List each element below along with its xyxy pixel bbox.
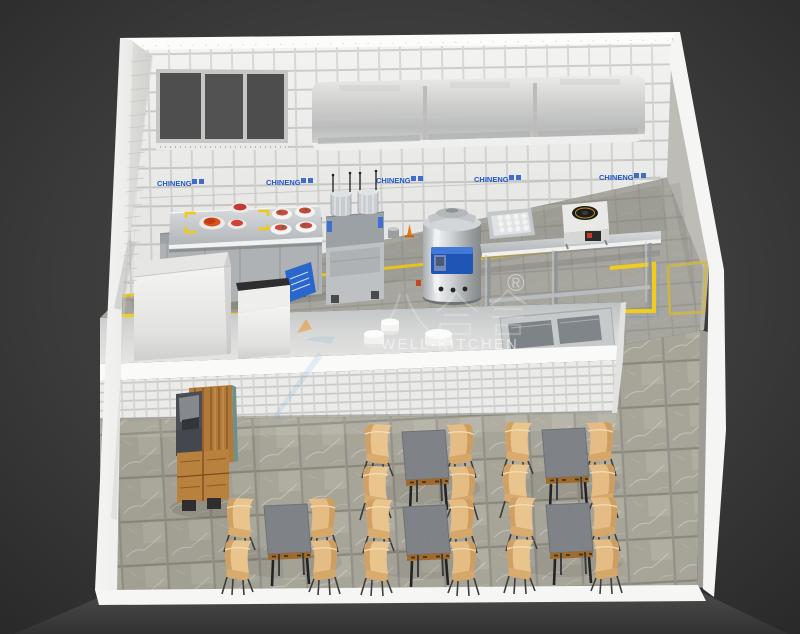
svg-text:CHINENG: CHINENG (376, 176, 411, 185)
svg-text:CHINENG: CHINENG (474, 175, 509, 184)
svg-text:CHINENG: CHINENG (599, 173, 634, 182)
svg-text:®: ® (507, 270, 525, 297)
svg-text:WELL-KITCHEN: WELL-KITCHEN (381, 336, 519, 353)
svg-text:CHINENG: CHINENG (266, 178, 301, 187)
svg-text:CHINENG: CHINENG (157, 179, 192, 188)
